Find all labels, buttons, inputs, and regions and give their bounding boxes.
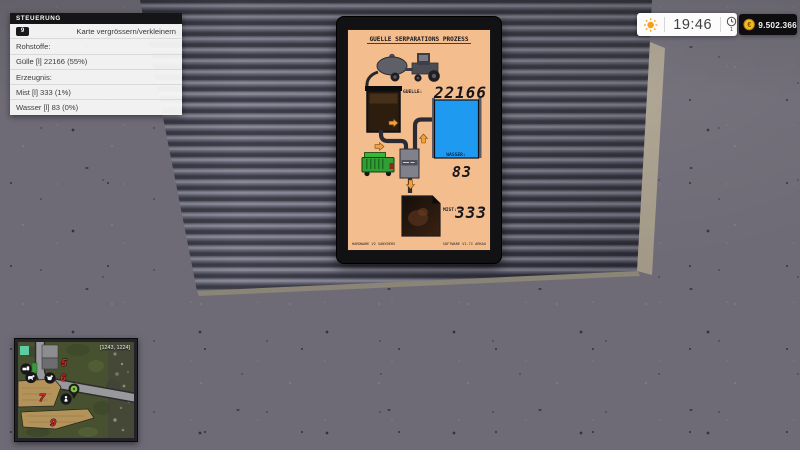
arrow-down-icon xyxy=(407,180,415,189)
separator-diagram: GUELLE SERPARATIONS PROZESS xyxy=(348,30,490,250)
slurry-tank-graphic xyxy=(365,86,402,132)
info-row: Mist [l] 333 (1%) xyxy=(10,84,182,99)
screen-footer-right: SOFTWARE V1.7I ARKAU xyxy=(443,242,486,246)
pump-engine-graphic xyxy=(362,153,394,177)
helper-icon xyxy=(60,393,71,404)
slurry-tanker-graphic xyxy=(367,53,440,87)
divider xyxy=(720,17,721,32)
keybind-row: 9 Karte vergrössern/verkleinern xyxy=(10,24,182,38)
row-text: Mist [l] 333 (1%) xyxy=(16,88,71,97)
player-coordinates: [1243, 1224] xyxy=(100,345,130,351)
arrow-up-icon xyxy=(420,134,428,143)
key-badge: 9 xyxy=(16,27,29,36)
chicken-icon xyxy=(44,372,55,383)
mist-value: 333 xyxy=(454,203,487,222)
map-marker-square xyxy=(20,346,29,355)
info-row: Rohstoffe: xyxy=(10,38,182,53)
info-row: Wasser [l] 83 (0%) xyxy=(10,99,182,114)
info-row: Gülle [l] 22166 (55%) xyxy=(10,54,182,69)
cow-icon xyxy=(25,372,36,383)
row-text: Erzeugnis: xyxy=(16,73,52,82)
wasser-value: 83 xyxy=(452,163,472,181)
game-viewport[interactable]: GUELLE SERPARATIONS PROZESS xyxy=(0,0,800,450)
minimap: 5 6 7 9 xyxy=(14,338,138,442)
row-text: Gülle [l] 22166 (55%) xyxy=(16,57,87,66)
field-number: 5 xyxy=(61,357,67,369)
separator-screen: GUELLE SERPARATIONS PROZESS xyxy=(347,29,491,251)
wasser-label: WASSER: xyxy=(446,152,465,158)
keybind-label: Karte vergrössern/verkleinern xyxy=(76,27,176,36)
screen-footer-left: HARDWARE V2 SANYDERS xyxy=(352,242,395,246)
separator-machine-graphic xyxy=(400,149,419,178)
money-panel: € 9.502.366 xyxy=(739,14,797,35)
separator-display-panel: GUELLE SERPARATIONS PROZESS xyxy=(337,17,501,263)
timescale-value: 1 xyxy=(730,28,733,34)
money-amount: 9.502.366 xyxy=(758,20,797,30)
minimap-canvas: 5 6 7 9 xyxy=(18,342,134,438)
control-help-panel: STEUERUNG 9 Karte vergrössern/verkleiner… xyxy=(10,13,182,115)
field-number: 9 xyxy=(50,417,56,429)
screen-title: GUELLE SERPARATIONS PROZESS xyxy=(369,36,468,43)
divider xyxy=(664,17,665,32)
timescale-clock-icon xyxy=(726,16,737,27)
manure-image xyxy=(402,196,440,236)
guelle-label: GUELLE: xyxy=(403,89,422,95)
water-tank-graphic: WASSER: xyxy=(432,98,482,158)
euro-coin-icon: € xyxy=(743,18,755,31)
info-row: Erzeugnis: xyxy=(10,69,182,84)
panel-title: STEUERUNG xyxy=(10,13,182,24)
currency-symbol: € xyxy=(747,21,751,29)
farm-buildings xyxy=(42,345,58,369)
sun-icon xyxy=(643,17,658,33)
clock-panel: 19:46 1 xyxy=(637,13,737,36)
timescale-indicator: 1 xyxy=(726,16,737,33)
map-vehicle-rect xyxy=(32,363,37,373)
row-text: Wasser [l] 83 (0%) xyxy=(16,103,78,112)
row-text: Rohstoffe: xyxy=(16,42,50,51)
time-display: 19:46 xyxy=(673,17,712,33)
field-number: 6 xyxy=(60,372,66,384)
arrow-right-icon xyxy=(375,143,384,151)
